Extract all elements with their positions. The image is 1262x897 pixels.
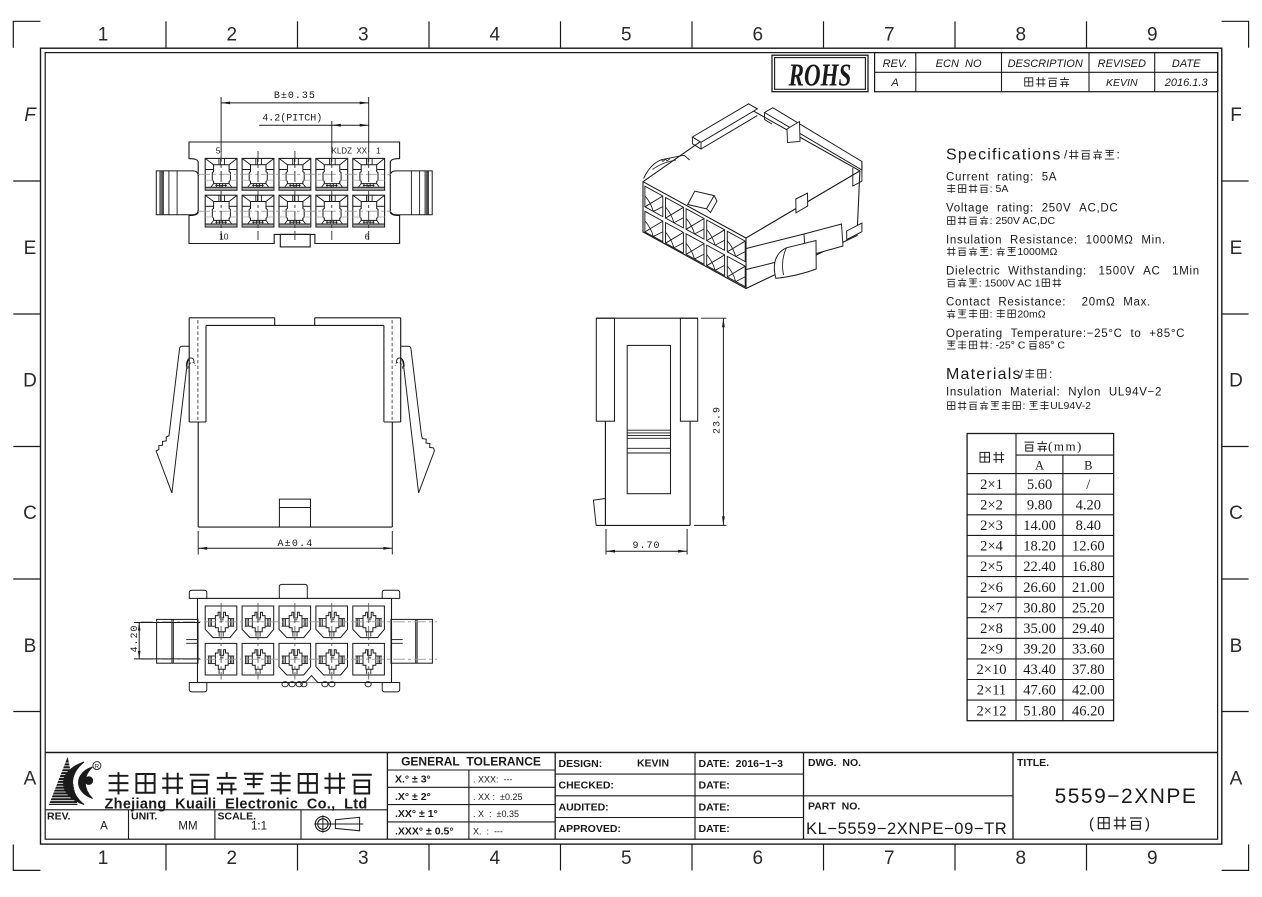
- svg-text:1:1: 1:1: [251, 821, 267, 833]
- svg-text:20mΩ: 20mΩ: [1017, 308, 1045, 320]
- svg-text:6: 6: [753, 25, 764, 46]
- svg-text:5559−2XNPE: 5559−2XNPE: [1055, 785, 1198, 808]
- svg-text:KEVIN: KEVIN: [637, 758, 669, 770]
- svg-text:REVISED: REVISED: [1098, 58, 1146, 70]
- svg-text:Insulation Resistance: 1000M: Insulation Resistance: 1000MΩ Min.: [946, 234, 1166, 246]
- svg-text:REV.: REV.: [47, 811, 71, 823]
- svg-text:9: 9: [1147, 25, 1158, 46]
- svg-text:B: B: [1084, 459, 1092, 473]
- svg-text:B±0.35: B±0.35: [274, 91, 316, 102]
- svg-text:DATE:: DATE:: [699, 801, 730, 813]
- svg-text:16.80: 16.80: [1072, 559, 1105, 575]
- svg-text:9: 9: [1147, 848, 1158, 869]
- svg-text::: :: [990, 308, 993, 320]
- svg-text:14.00: 14.00: [1023, 518, 1056, 534]
- svg-text:A: A: [1035, 459, 1044, 473]
- svg-text:25.20: 25.20: [1072, 600, 1105, 616]
- svg-text:4.20: 4.20: [130, 624, 141, 652]
- svg-text:23.9: 23.9: [713, 406, 724, 434]
- svg-text:Specifications: Specifications: [946, 147, 1062, 164]
- svg-text:4: 4: [490, 848, 501, 869]
- svg-text:22.40: 22.40: [1023, 559, 1056, 575]
- svg-text:37.80: 37.80: [1072, 662, 1105, 678]
- svg-text:5.60: 5.60: [1027, 477, 1052, 493]
- svg-text:2×2: 2×2: [980, 497, 1003, 513]
- svg-text:A: A: [24, 769, 37, 790]
- svg-text:X.° ± 3°: X.° ± 3°: [395, 774, 431, 786]
- svg-text:1: 1: [98, 25, 109, 46]
- svg-text:Materials: Materials: [946, 366, 1022, 383]
- svg-text:2×10: 2×10: [977, 662, 1007, 678]
- svg-text:(mm): (mm): [1048, 439, 1083, 454]
- svg-text:(: (: [1089, 816, 1094, 833]
- svg-text:UNIT.: UNIT.: [131, 811, 157, 823]
- svg-text:30.80: 30.80: [1023, 600, 1056, 616]
- svg-text::: :: [1049, 367, 1052, 381]
- svg-text:. X : ±0.35: . X : ±0.35: [473, 809, 519, 819]
- svg-text:B: B: [1230, 636, 1243, 657]
- svg-text:R: R: [95, 764, 100, 770]
- svg-text:Dielectric Withstanding: 15: Dielectric Withstanding: 1500V AC 1Min: [946, 266, 1200, 278]
- svg-text:6: 6: [753, 848, 764, 869]
- svg-text:PART NO.: PART NO.: [808, 801, 860, 813]
- svg-text:: 250V AC,DC: : 250V AC,DC: [990, 215, 1056, 227]
- svg-text:2×4: 2×4: [980, 539, 1003, 555]
- svg-text:Current rating: 5A: Current rating: 5A: [946, 172, 1057, 184]
- svg-text:DATE:: DATE:: [699, 780, 730, 792]
- svg-text:A: A: [890, 77, 898, 89]
- svg-text:DATE: DATE: [1172, 58, 1201, 70]
- svg-text:REV.: REV.: [883, 58, 908, 70]
- svg-text:2×1: 2×1: [980, 477, 1003, 493]
- svg-text:: -25° C: : -25° C: [990, 340, 1026, 352]
- svg-text:KLDZ XX: KLDZ XX: [332, 147, 368, 156]
- svg-text:: 5A: : 5A: [990, 183, 1009, 195]
- svg-text:KL−5559−2XNPE−09−TR: KL−5559−2XNPE−09−TR: [806, 820, 1007, 838]
- svg-text::: :: [990, 246, 993, 258]
- svg-text:29.40: 29.40: [1072, 621, 1105, 637]
- svg-text:DATE:: DATE:: [699, 823, 730, 835]
- svg-text::: :: [1022, 400, 1025, 412]
- svg-text:51.80: 51.80: [1023, 703, 1056, 719]
- svg-text:2: 2: [227, 25, 238, 46]
- svg-text:UL94V-2: UL94V-2: [1050, 400, 1091, 412]
- svg-text:E: E: [24, 238, 37, 259]
- svg-text:AUDITED:: AUDITED:: [559, 801, 609, 813]
- svg-text:Operating Temperature:−25°C: Operating Temperature:−25°C to +85°C: [946, 328, 1185, 340]
- svg-text:D: D: [1229, 371, 1243, 392]
- svg-text:X. : ---: X. : ---: [473, 827, 503, 837]
- svg-text:43.40: 43.40: [1023, 662, 1056, 678]
- svg-text:GENERAL TOLERANCE: GENERAL TOLERANCE: [401, 755, 541, 769]
- svg-text:2×9: 2×9: [980, 642, 1003, 658]
- svg-text:2×7: 2×7: [980, 600, 1003, 616]
- svg-text:6: 6: [365, 232, 370, 242]
- svg-text:8.40: 8.40: [1076, 518, 1101, 534]
- svg-text:8: 8: [1016, 848, 1027, 869]
- svg-text:39.20: 39.20: [1023, 642, 1056, 658]
- svg-text:A±0.4: A±0.4: [277, 539, 313, 550]
- svg-text:7: 7: [884, 25, 895, 46]
- svg-text:.XXX° ± 0.5°: .XXX° ± 0.5°: [395, 826, 454, 838]
- svg-text:DATE: 2016−1−3: DATE: 2016−1−3: [699, 758, 784, 770]
- svg-text:DWG. NO.: DWG. NO.: [808, 757, 861, 769]
- svg-text:APPROVED:: APPROVED:: [559, 823, 621, 835]
- svg-text:46.20: 46.20: [1072, 703, 1105, 719]
- svg-text:TITLE.: TITLE.: [1017, 757, 1049, 769]
- svg-text:42.00: 42.00: [1072, 683, 1105, 699]
- svg-text:35.00: 35.00: [1023, 621, 1056, 637]
- svg-text:MM: MM: [178, 821, 197, 833]
- svg-text:85° C: 85° C: [1039, 340, 1066, 352]
- svg-text:A: A: [100, 821, 108, 833]
- svg-text:1: 1: [98, 848, 109, 869]
- svg-text:3: 3: [358, 848, 369, 869]
- svg-text:1000MΩ: 1000MΩ: [1017, 246, 1057, 258]
- svg-text:F: F: [24, 105, 37, 126]
- svg-text:.XX° ± 1°: .XX° ± 1°: [395, 808, 438, 820]
- svg-text:10: 10: [219, 232, 229, 242]
- svg-text:DESCRIPTION: DESCRIPTION: [1008, 58, 1083, 70]
- svg-text:1: 1: [376, 146, 381, 156]
- svg-text:ECN NO: ECN NO: [936, 58, 982, 70]
- svg-text:21.00: 21.00: [1072, 580, 1105, 596]
- svg-text:.X° ± 2°: .X° ± 2°: [395, 791, 431, 803]
- svg-text:9.70: 9.70: [632, 541, 660, 552]
- svg-text:18.20: 18.20: [1023, 539, 1056, 555]
- svg-text:CHECKED:: CHECKED:: [559, 780, 614, 792]
- svg-text:D: D: [23, 371, 37, 392]
- svg-text:A: A: [1230, 769, 1243, 790]
- svg-text:ROHS: ROHS: [788, 58, 852, 94]
- svg-text:Insulation Material: Nylon: Insulation Material: Nylon UL94V−2: [946, 387, 1162, 399]
- svg-text:2×8: 2×8: [980, 621, 1003, 637]
- svg-text::: :: [1117, 148, 1120, 162]
- svg-text:9.80: 9.80: [1027, 497, 1052, 513]
- svg-text:2×5: 2×5: [980, 559, 1003, 575]
- svg-text:2: 2: [227, 848, 238, 869]
- svg-text:C: C: [1229, 503, 1243, 524]
- svg-text:5: 5: [216, 146, 221, 156]
- svg-text:C: C: [23, 503, 37, 524]
- svg-text:4: 4: [490, 25, 501, 46]
- svg-text:3: 3: [358, 25, 369, 46]
- svg-text:E: E: [1230, 238, 1243, 259]
- svg-text:5: 5: [621, 25, 632, 46]
- svg-text:: 1500V AC 1: : 1500V AC 1: [979, 277, 1041, 289]
- svg-text:47.60: 47.60: [1023, 683, 1056, 699]
- svg-text:KEVIN: KEVIN: [1106, 77, 1138, 89]
- svg-text:26.60: 26.60: [1023, 580, 1056, 596]
- svg-text:DESIGN:: DESIGN:: [559, 758, 603, 770]
- svg-text:Voltage rating: 250V AC,DC: Voltage rating: 250V AC,DC: [946, 203, 1118, 215]
- svg-text:8: 8: [1016, 25, 1027, 46]
- svg-text:2×3: 2×3: [980, 518, 1003, 534]
- svg-text:4.20: 4.20: [1076, 497, 1101, 513]
- svg-text:33.60: 33.60: [1072, 642, 1105, 658]
- svg-text:2×12: 2×12: [977, 703, 1007, 719]
- svg-text:2016.1.3: 2016.1.3: [1164, 77, 1209, 89]
- svg-text:Contact Resistance: 20mΩ: Contact Resistance: 20mΩ Max.: [946, 297, 1151, 309]
- svg-text:12.60: 12.60: [1072, 539, 1105, 555]
- svg-text:): ): [1145, 816, 1150, 833]
- svg-text:5: 5: [621, 848, 632, 869]
- svg-text:B: B: [24, 636, 37, 657]
- svg-text:. XX : ±0.25: . XX : ±0.25: [473, 792, 522, 802]
- svg-text:7: 7: [884, 848, 895, 869]
- svg-text:4.2(PITCH): 4.2(PITCH): [262, 112, 322, 124]
- svg-text:F: F: [1230, 105, 1242, 126]
- svg-text:2×6: 2×6: [980, 580, 1003, 596]
- svg-text:2×11: 2×11: [977, 683, 1006, 699]
- svg-text:. XXX: ---: . XXX: ---: [473, 775, 513, 785]
